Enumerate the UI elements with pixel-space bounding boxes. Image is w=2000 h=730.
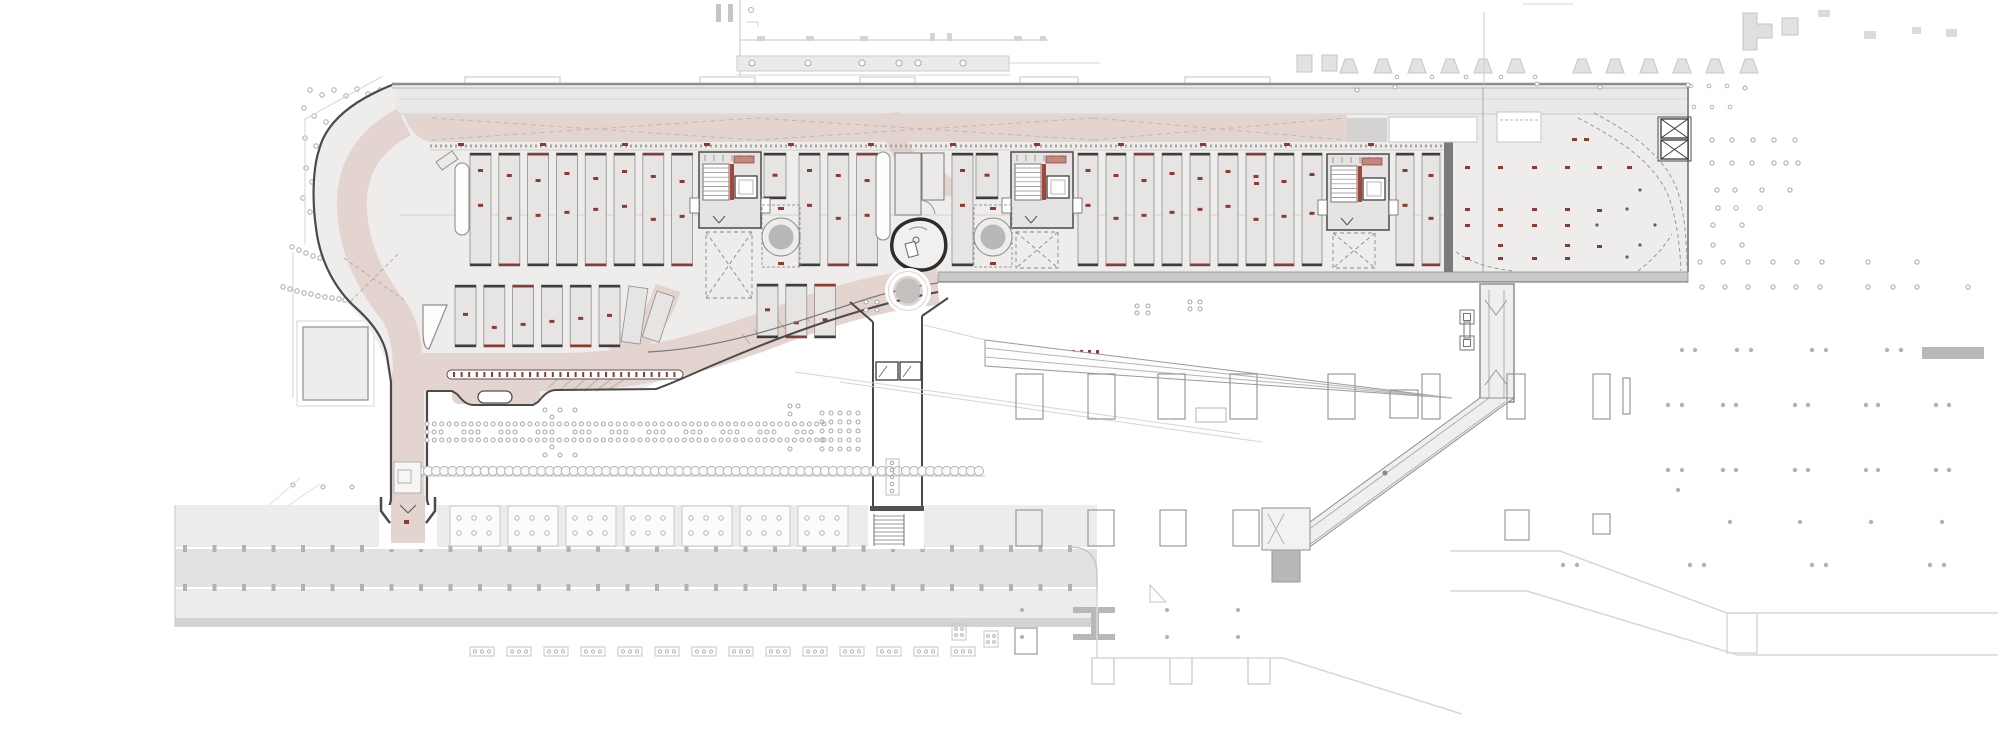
- site-plan-canvas: Parking garage level plan: [0, 0, 2000, 730]
- external-ramp-wedge: [795, 340, 1452, 442]
- escalator-walkway: [1150, 284, 1514, 602]
- garden: [394, 404, 985, 495]
- street: [175, 497, 1097, 656]
- architectural-site-plan: Parking garage level plan: [0, 0, 2000, 730]
- neighbor-plan-fragment: [716, 0, 1100, 76]
